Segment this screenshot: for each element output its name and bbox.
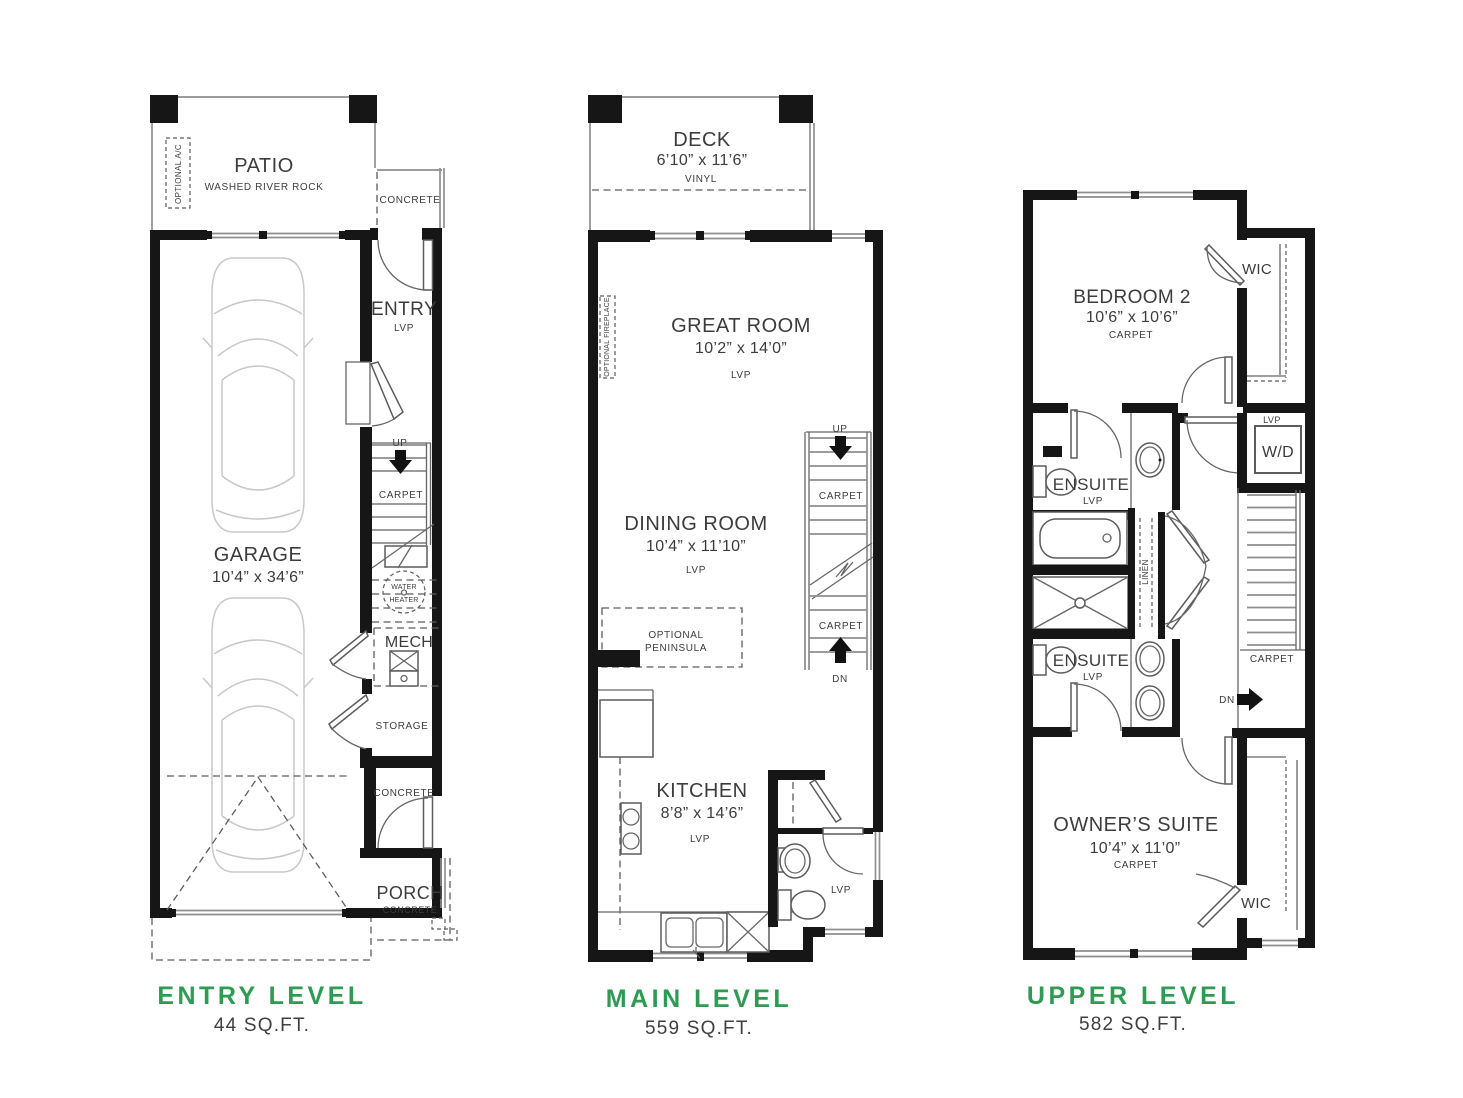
great-room-label: GREAT ROOM: [671, 315, 811, 337]
upper-level-area: 582 SQ.FT.: [1079, 1014, 1187, 1035]
garage-entry-door: [346, 362, 403, 426]
entry-level-title: ENTRY LEVEL: [157, 982, 366, 1010]
wd-label: W/D: [1262, 444, 1294, 461]
optional-peninsula-label-2: PENINSULA: [645, 643, 707, 654]
entry-level-area: 44 SQ.FT.: [214, 1015, 310, 1036]
deck-label: DECK: [673, 129, 731, 151]
garage-door-swing: [152, 776, 371, 960]
concrete-walk-label: CONCRETE: [380, 195, 441, 206]
porch-sub-label: CONCRETE: [383, 905, 438, 915]
kitchen-floor-label: LVP: [690, 834, 710, 845]
ensuite2-label: ENSUITE: [1053, 651, 1129, 670]
dn-arrow-icon: [1237, 688, 1263, 711]
owners-suite-dims-label: 10’4” x 11’0”: [1090, 840, 1181, 857]
linen-double-doors: [1165, 511, 1209, 629]
kitchen-dims-label: 8’8” x 14’6”: [661, 805, 744, 822]
linen-closet: LINEN: [1128, 508, 1209, 639]
bedroom2-floor-label: CARPET: [1109, 330, 1153, 341]
ensuite1-sink: [1136, 443, 1164, 477]
upper-stairs-carpet-label: CARPET: [1250, 654, 1294, 665]
linen-label: LINEN: [1141, 559, 1150, 585]
mech-area: MECH: [374, 628, 440, 686]
wd-floor-label: LVP: [1263, 415, 1281, 425]
fridge: [600, 700, 653, 757]
optional-ac-label: OPTIONAL A/C: [174, 144, 183, 204]
main-stairs: UP CARPET CARPET DN: [805, 424, 873, 685]
dining-room-floor-label: LVP: [686, 565, 706, 576]
bedroom2-wall: [1023, 403, 1188, 423]
front-door: [378, 240, 433, 290]
upper-dn-label: DN: [1219, 695, 1235, 706]
main-level-area: 559 SQ.FT.: [645, 1018, 753, 1039]
floor-plan-sheet: OPTIONAL A/C PATIO WASHED RIVER ROCK CON…: [0, 0, 1463, 1098]
great-room-floor-label: LVP: [731, 370, 751, 381]
ensuite1-door: [1071, 410, 1121, 458]
wd-closet: LVP W/D: [1237, 403, 1315, 493]
main-carpet1-label: CARPET: [819, 491, 863, 502]
ensuite1-label: ENSUITE: [1053, 475, 1129, 494]
water-heater: WATER HEATER: [383, 571, 425, 613]
ensuite1-floor-label: LVP: [1083, 496, 1103, 507]
shower: [1033, 577, 1128, 629]
powder-floor-label: LVP: [831, 885, 851, 896]
owners-suite-label: OWNER’S SUITE: [1053, 814, 1218, 836]
dining-room-dims-label: 10’4” x 11’10”: [646, 538, 746, 555]
patio: OPTIONAL A/C PATIO WASHED RIVER ROCK: [150, 95, 377, 230]
upper-level-plan: BEDROOM 2 10’6” x 10’6” CARPET WIC: [1023, 190, 1315, 1035]
main-up-arrow-icon: [829, 637, 852, 663]
mech-label: MECH: [385, 634, 433, 651]
upper-stairs: CARPET DN: [1219, 488, 1305, 728]
optional-peninsula-label-1: OPTIONAL: [648, 630, 703, 641]
bedroom2-label: BEDROOM 2: [1073, 287, 1191, 308]
main-up-label: UP: [832, 424, 847, 435]
dining-room-label: DINING ROOM: [624, 513, 767, 535]
ensuite2-sink-2: [1136, 686, 1164, 720]
kitchen-sink: [661, 913, 727, 958]
entry-level-plan: OPTIONAL A/C PATIO WASHED RIVER ROCK CON…: [150, 95, 457, 1036]
concrete-room: CONCRETE: [374, 788, 435, 848]
porch-label: PORCH: [376, 883, 443, 903]
main-level-title: MAIN LEVEL: [606, 985, 792, 1013]
main-level-plan: DECK 6’10” x 11’6” VINYL OPT: [588, 95, 883, 1039]
wic-bottom-door: [1198, 886, 1240, 927]
bedroom2-dims-label: 10’6” x 10’6”: [1086, 309, 1178, 326]
concrete-walk: CONCRETE: [377, 168, 444, 228]
entry-floor-label: LVP: [394, 323, 414, 334]
owners-suite-floor-label: CARPET: [1114, 860, 1158, 871]
mech-door: [330, 631, 368, 679]
kitchen-label: KITCHEN: [656, 780, 747, 802]
garage-dims-label: 10’4” x 34’6”: [212, 569, 304, 586]
deck-dims-label: 6’10” x 11’6”: [657, 152, 748, 169]
powder-door: [823, 828, 863, 874]
ensuite2-floor-label: LVP: [1083, 672, 1103, 683]
patio-label: PATIO: [234, 155, 294, 177]
garage-label: GARAGE: [214, 544, 303, 566]
main-down-arrow-icon: [829, 436, 852, 460]
stove: [621, 803, 641, 854]
wic-top-label: WIC: [1242, 261, 1272, 278]
ensuite2: ENSUITE LVP: [1033, 639, 1180, 737]
ensuite1: ENSUITE LVP: [1033, 410, 1180, 510]
deck: DECK 6’10” x 11’6” VINYL: [588, 95, 814, 230]
stairs-carpet-label: CARPET: [379, 490, 423, 501]
owners-suite-door: [1182, 737, 1232, 784]
porch: PORCH CONCRETE: [376, 858, 457, 940]
powder-sink: [778, 844, 810, 878]
ensuite2-sink-1: [1136, 642, 1164, 676]
powder-closet-door: [810, 780, 841, 822]
storage-door: [329, 695, 368, 749]
hall-door: [1185, 417, 1240, 473]
entry-room-label: ENTRY: [371, 299, 437, 320]
dishwasher: [727, 912, 769, 952]
deck-floor-label: VINYL: [685, 174, 717, 185]
ensuite2-door: [1071, 683, 1121, 731]
floor-plan-svg: OPTIONAL A/C PATIO WASHED RIVER ROCK CON…: [0, 0, 1463, 1098]
upper-level-title: UPPER LEVEL: [1027, 982, 1239, 1010]
main-carpet2-label: CARPET: [819, 621, 863, 632]
water-heater-label-2: HEATER: [389, 597, 418, 604]
patio-sub-label: WASHED RIVER ROCK: [205, 182, 324, 193]
powder-toilet: [778, 890, 825, 920]
bathtub: [1033, 512, 1127, 565]
wic-bottom-label: WIC: [1241, 895, 1271, 912]
powder-room: LVP: [768, 770, 873, 927]
up-label: UP: [392, 438, 407, 449]
bedroom2-door: [1182, 357, 1232, 403]
optional-fireplace-label: OPTIONAL FIREPLACE: [604, 297, 611, 377]
great-room-dims-label: 10’2” x 14’0”: [695, 340, 787, 357]
storage-label: STORAGE: [376, 721, 429, 732]
main-dn-label: DN: [832, 674, 848, 685]
